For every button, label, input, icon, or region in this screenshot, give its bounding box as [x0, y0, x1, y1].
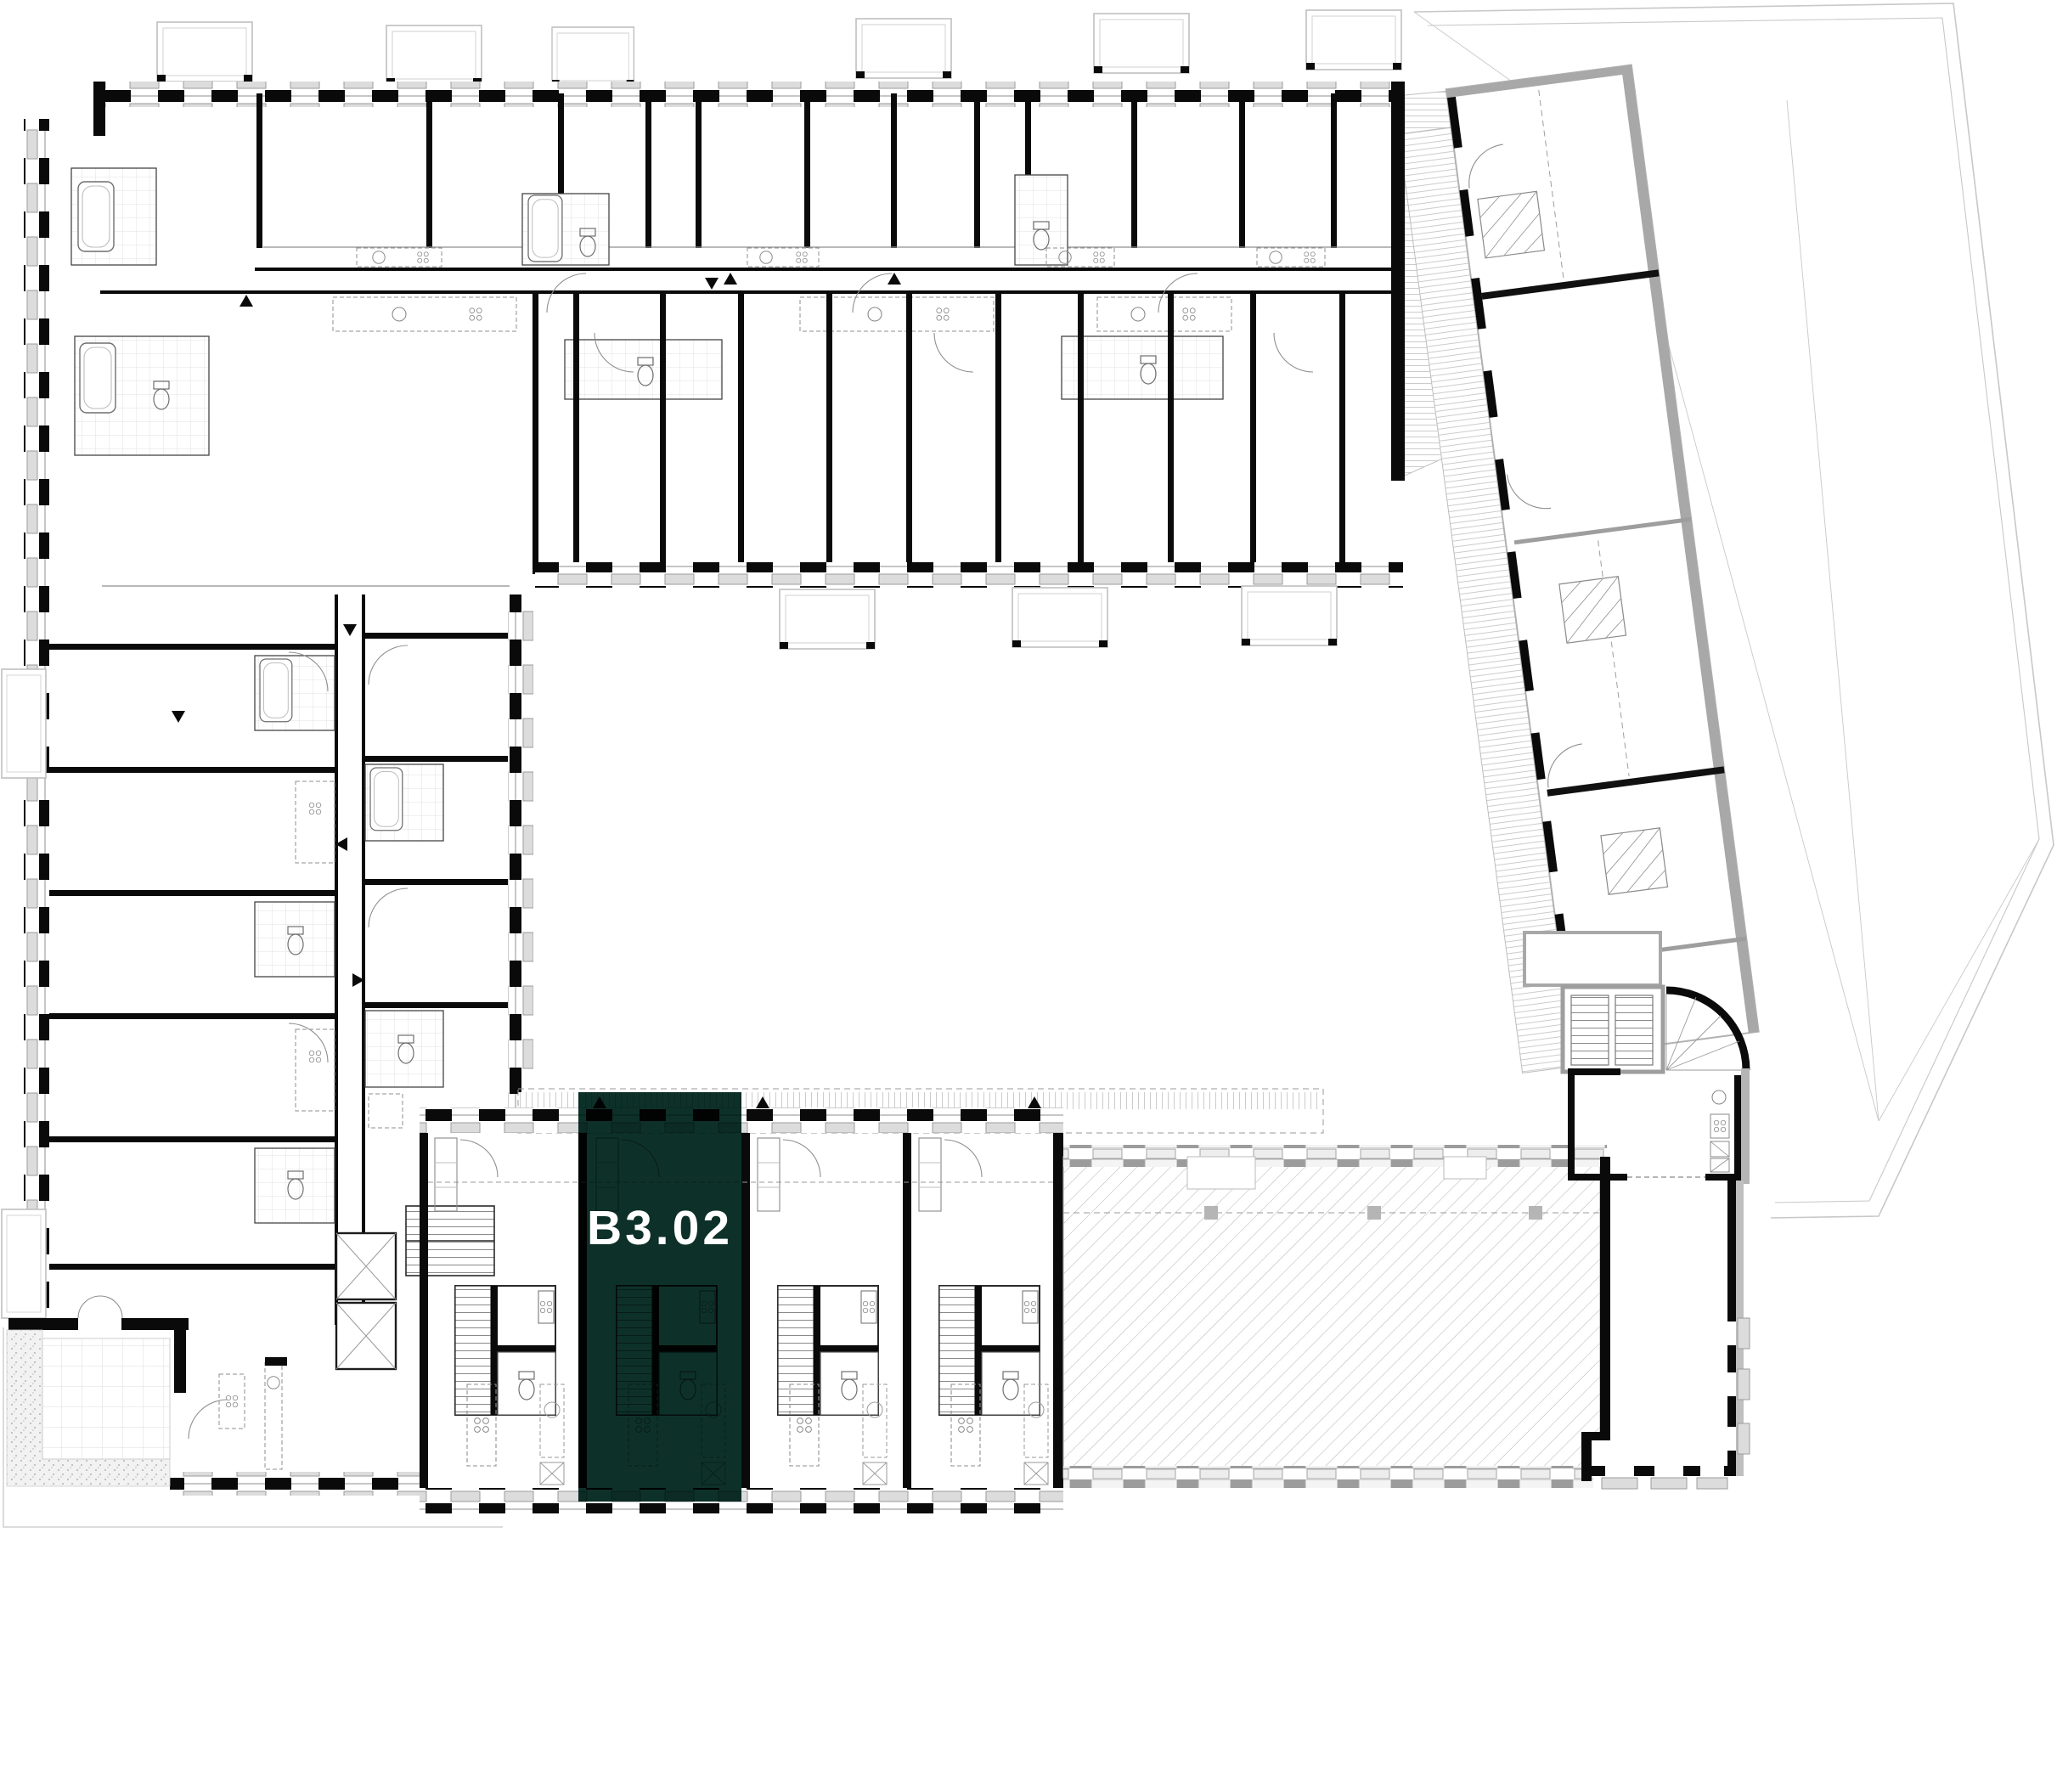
north-facade — [100, 82, 1403, 107]
highlighted-unit-overlay[interactable] — [578, 1092, 741, 1502]
east-facade — [508, 595, 533, 1119]
balcony — [157, 22, 252, 82]
floorplan-canvas: B3.02 — [0, 0, 2057, 1792]
south-facade — [535, 562, 1403, 588]
stair-room — [1563, 987, 1663, 1072]
corridor-wall — [255, 268, 1391, 271]
commercial-hatch-area — [1063, 1145, 1610, 1488]
unit-label: B3.02 — [587, 1201, 733, 1255]
highlighted-unit-B3.02[interactable]: B3.02 — [578, 1092, 741, 1502]
